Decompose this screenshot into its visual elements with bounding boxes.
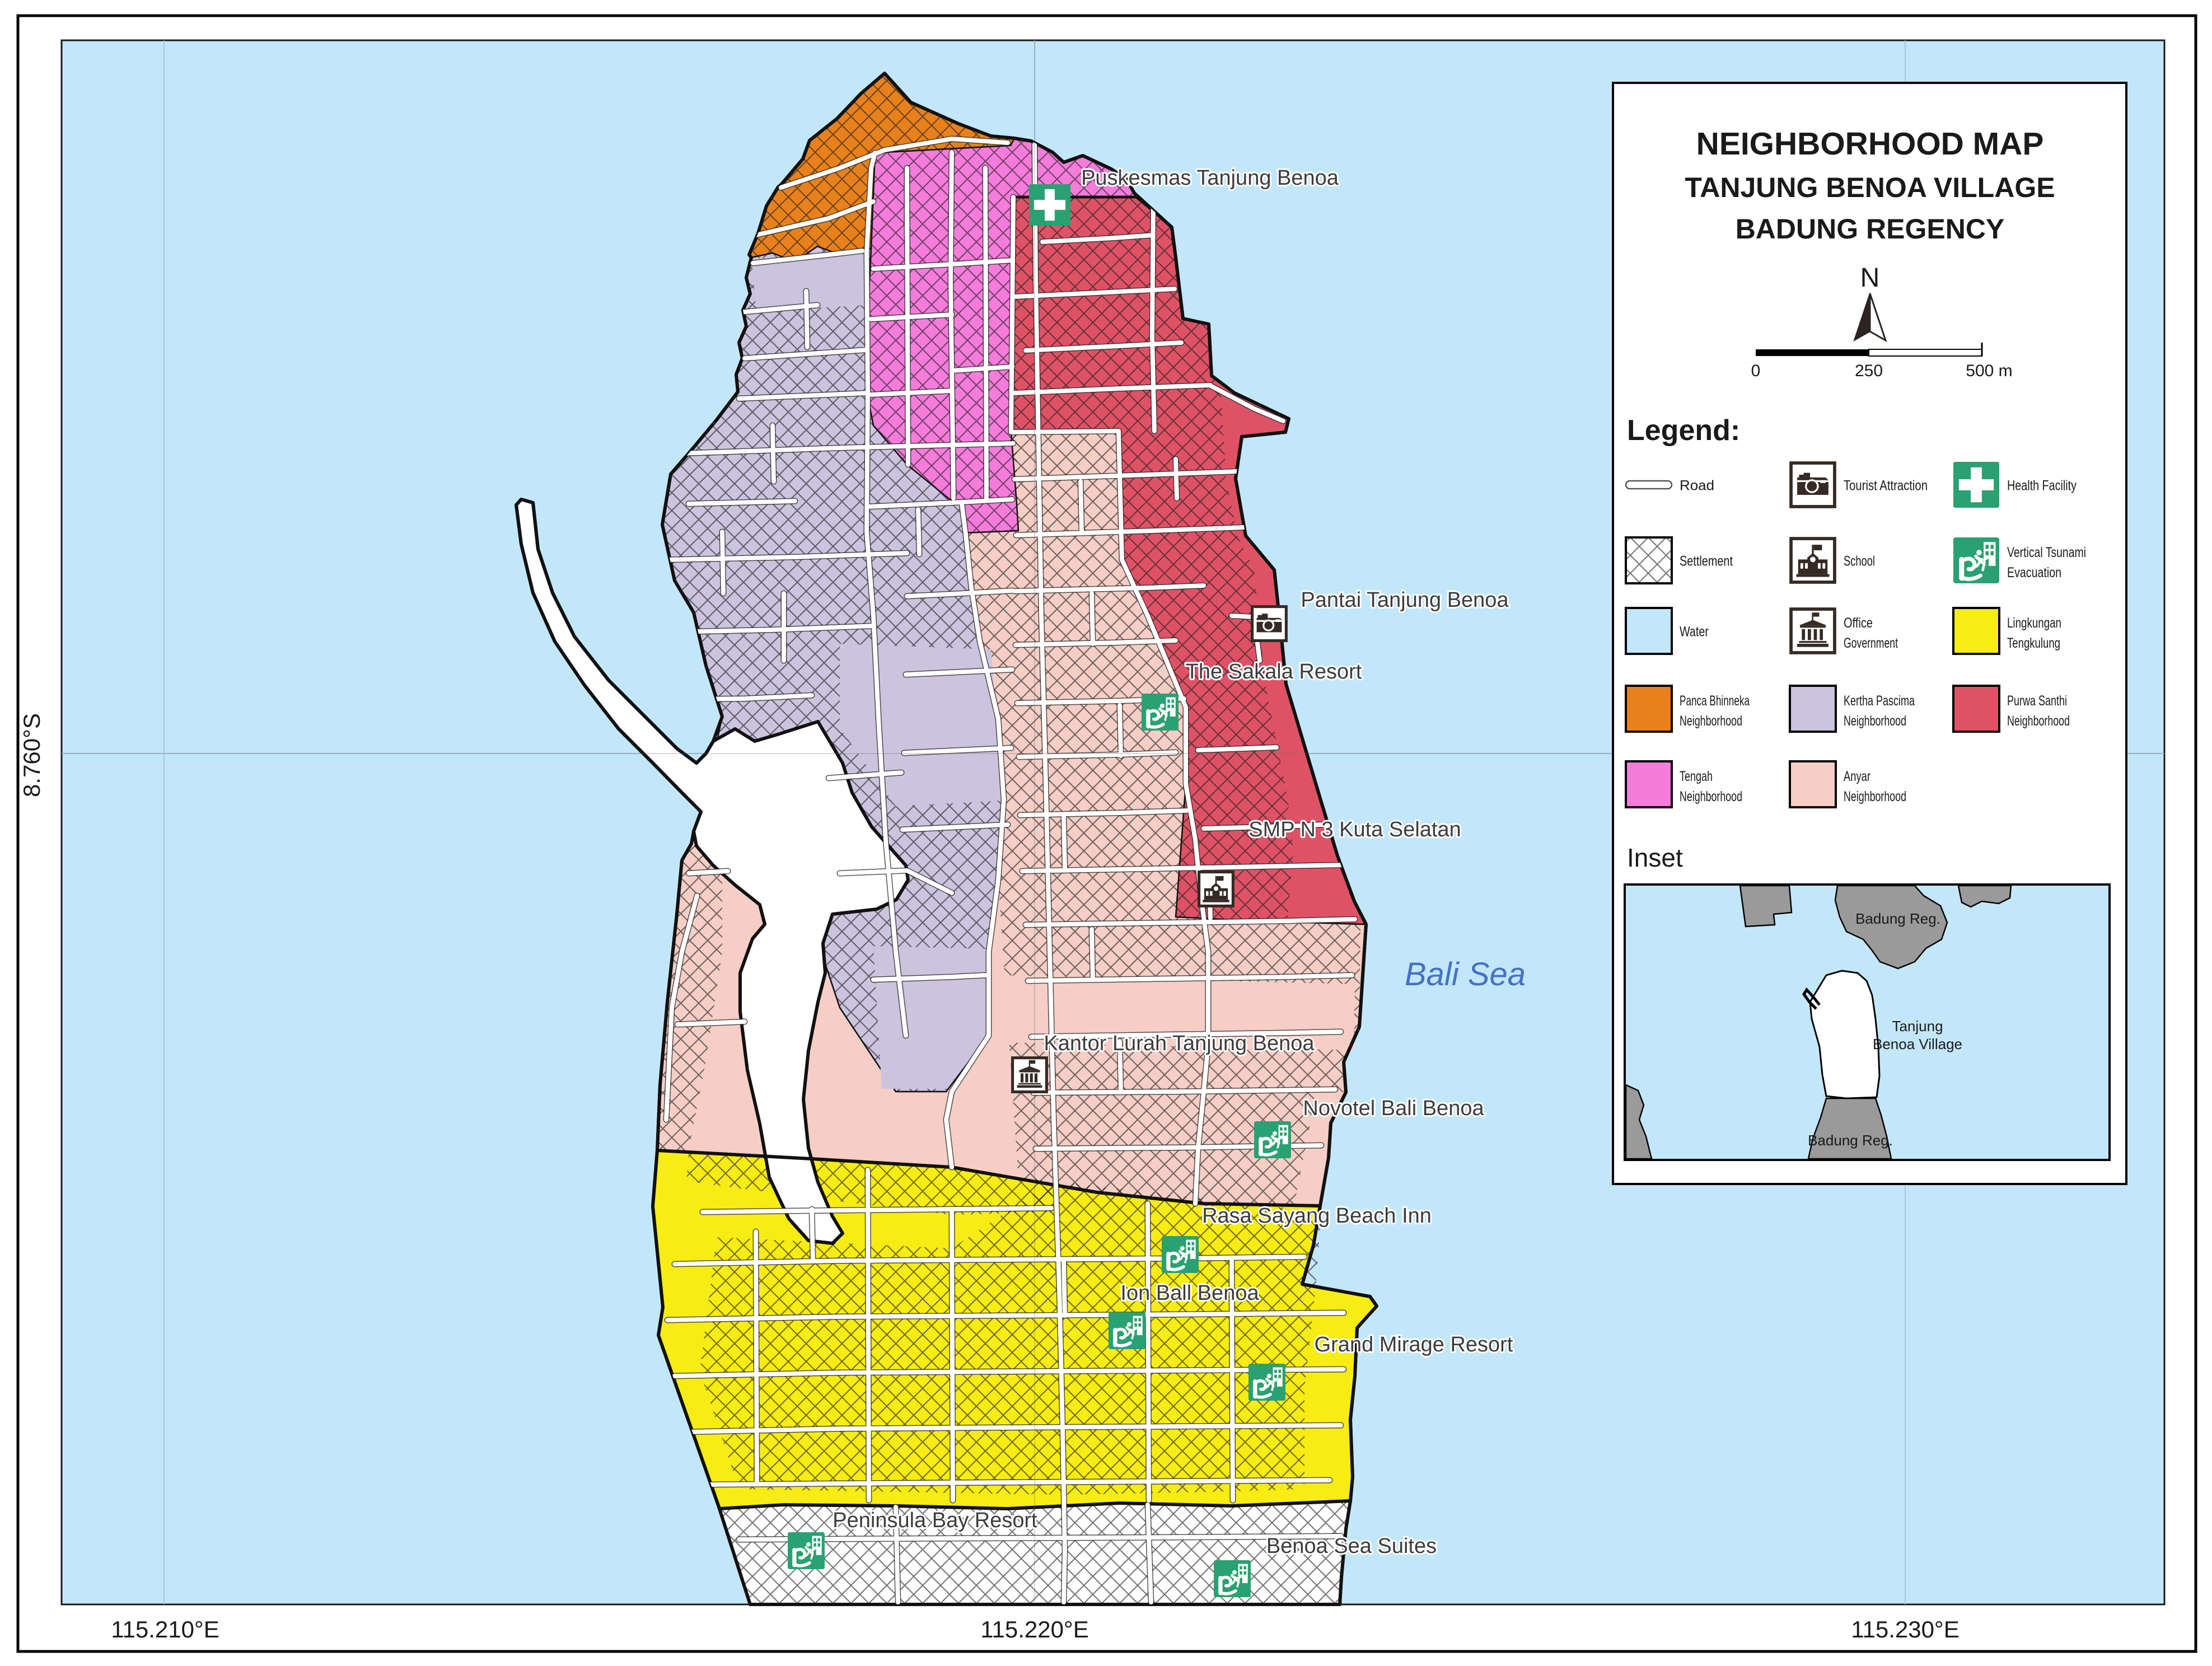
svg-text:BADUNG REGENCY: BADUNG REGENCY xyxy=(1736,213,2005,245)
svg-text:8.760°S: 8.760°S xyxy=(18,713,45,797)
svg-text:115.210°E: 115.210°E xyxy=(111,1616,219,1642)
svg-text:500 m: 500 m xyxy=(1966,362,2012,380)
svg-text:N: N xyxy=(1860,263,1880,293)
svg-text:Bali Sea: Bali Sea xyxy=(1405,956,1526,993)
svg-text:Tengkulung: Tengkulung xyxy=(2007,635,2060,651)
svg-text:Water: Water xyxy=(1680,624,1709,640)
svg-text:Road: Road xyxy=(1680,478,1714,494)
svg-text:Purwa Santhi: Purwa Santhi xyxy=(2007,693,2067,709)
svg-text:Benoa Sea Suites: Benoa Sea Suites xyxy=(1266,1534,1437,1558)
svg-text:Panca Bhinneka: Panca Bhinneka xyxy=(1680,693,1750,709)
svg-text:Neighborhood: Neighborhood xyxy=(1680,713,1742,729)
svg-text:Evacuation: Evacuation xyxy=(2007,565,2061,581)
svg-text:Badung Reg.: Badung Reg. xyxy=(1855,910,1940,927)
svg-text:Peninsula Bay Resort: Peninsula Bay Resort xyxy=(833,1509,1037,1532)
svg-text:0: 0 xyxy=(1751,362,1761,380)
svg-text:Ion Ball Benoa: Ion Ball Benoa xyxy=(1120,1281,1259,1305)
svg-text:Legend:: Legend: xyxy=(1627,414,1740,447)
svg-text:Health Facility: Health Facility xyxy=(2007,478,2077,494)
svg-text:250: 250 xyxy=(1855,362,1883,380)
svg-text:Neighborhood: Neighborhood xyxy=(2007,713,2070,729)
svg-text:NEIGHBORHOOD MAP: NEIGHBORHOOD MAP xyxy=(1696,126,2044,162)
svg-text:SMP N 3 Kuta Selatan: SMP N 3 Kuta Selatan xyxy=(1248,818,1461,841)
svg-text:TANJUNG BENOA VILLAGE: TANJUNG BENOA VILLAGE xyxy=(1685,172,2055,203)
svg-text:Badung Reg.: Badung Reg. xyxy=(1808,1132,1893,1149)
svg-text:Kantor Lurah Tanjung Benoa: Kantor Lurah Tanjung Benoa xyxy=(1044,1032,1315,1055)
svg-text:Office: Office xyxy=(1844,615,1873,631)
svg-text:Settlement: Settlement xyxy=(1680,554,1733,569)
svg-text:Lingkungan: Lingkungan xyxy=(2007,615,2061,631)
svg-text:Inset: Inset xyxy=(1627,843,1683,872)
svg-text:Neighborhood: Neighborhood xyxy=(1680,789,1742,804)
svg-text:School: School xyxy=(1844,554,1875,569)
svg-text:The Sakala Resort: The Sakala Resort xyxy=(1186,660,1362,684)
svg-text:Puskesmas Tanjung Benoa: Puskesmas Tanjung Benoa xyxy=(1081,166,1339,190)
svg-text:Tanjung: Tanjung xyxy=(1892,1018,1943,1035)
svg-text:Neighborhood: Neighborhood xyxy=(1844,789,1906,804)
svg-text:Neighborhood: Neighborhood xyxy=(1844,713,1906,729)
svg-text:Novotel Bali Benoa: Novotel Bali Benoa xyxy=(1303,1097,1484,1120)
svg-text:115.230°E: 115.230°E xyxy=(1851,1616,1960,1642)
svg-text:Vertical Tsunami: Vertical Tsunami xyxy=(2007,545,2086,560)
svg-text:Tourist Attraction: Tourist Attraction xyxy=(1844,478,1928,494)
svg-text:Rasa Sayang Beach Inn: Rasa Sayang Beach Inn xyxy=(1202,1204,1432,1228)
svg-text:Pantai Tanjung Benoa: Pantai Tanjung Benoa xyxy=(1301,588,1509,612)
svg-text:Tengah: Tengah xyxy=(1680,769,1713,784)
svg-text:Anyar: Anyar xyxy=(1844,769,1870,784)
svg-text:Benoa Village: Benoa Village xyxy=(1873,1036,1962,1052)
svg-text:Grand Mirage Resort: Grand Mirage Resort xyxy=(1315,1333,1513,1356)
svg-text:115.220°E: 115.220°E xyxy=(980,1616,1089,1642)
svg-text:Government: Government xyxy=(1844,635,1898,651)
svg-text:Kertha Pascima: Kertha Pascima xyxy=(1844,693,1915,709)
